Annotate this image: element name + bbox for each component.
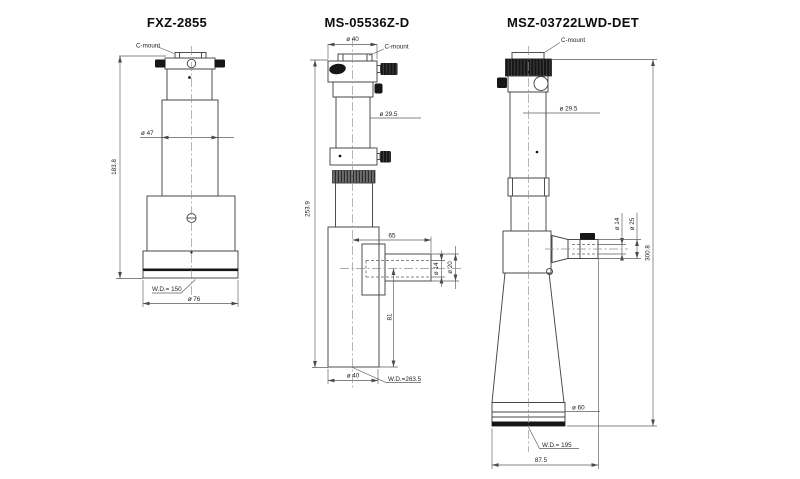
dim-label-overall-height: 183.8	[111, 159, 118, 175]
knurled-zoom-ring	[333, 171, 376, 184]
c-mount-label: C-mount	[561, 37, 585, 44]
dim-label-base-diameter: ø 40	[347, 373, 360, 380]
dim-label-port-diameter: ø 25	[629, 217, 636, 230]
dim-label-tube-diameter: ø 29.5	[560, 106, 578, 113]
drawing-title: MS-05536Z-D	[325, 15, 410, 30]
dim-label-port-axis-height: 81	[387, 313, 394, 321]
dim-label-top-diameter: ø 40	[346, 36, 359, 43]
dim-label-body-diameter: ø 47	[141, 130, 154, 137]
drawing-title: MSZ-03722LWD-DET	[507, 15, 639, 30]
adapter-knob	[375, 84, 383, 94]
dim-label-tube-diameter: ø 29.5	[380, 111, 398, 118]
head-clamp-knob	[497, 78, 507, 89]
dim-label-overall-height: 253.9	[305, 201, 312, 217]
dim-label-port-length: 65	[388, 233, 396, 240]
focus-knob	[380, 151, 391, 163]
dim-label-base-diameter: ø 60	[572, 405, 585, 412]
left-clamp-knob	[155, 60, 166, 68]
dim-label-port-diameter: ø 20	[447, 261, 454, 274]
c-mount-label: C-mount	[136, 43, 160, 50]
dim-label-port-hole-diameter: ø 14	[433, 262, 440, 275]
dim-label-overall-height: 300.8	[645, 245, 652, 261]
lens-edge-band	[143, 269, 238, 272]
dim-label-base-diameter: ø 76	[188, 296, 201, 303]
c-mount-label: C-mount	[385, 44, 409, 51]
working-distance-label: W.D.=263.5	[388, 376, 422, 383]
right-clamp-knob	[215, 60, 226, 68]
dim-label-port-hole-diameter: ø 14	[614, 217, 621, 230]
head-knurled-knob	[381, 63, 398, 75]
dim-label-base-width: 87.5	[535, 457, 548, 464]
port-knob	[580, 233, 595, 240]
technical-drawing-canvas: FXZ-2855 C-mount ø 47 183.8 W.D.= 150 ø …	[0, 0, 800, 479]
drawing-title: FXZ-2855	[147, 15, 207, 30]
working-distance-label: W.D.= 195	[542, 442, 572, 449]
working-distance-label: W.D.= 150	[152, 286, 182, 293]
